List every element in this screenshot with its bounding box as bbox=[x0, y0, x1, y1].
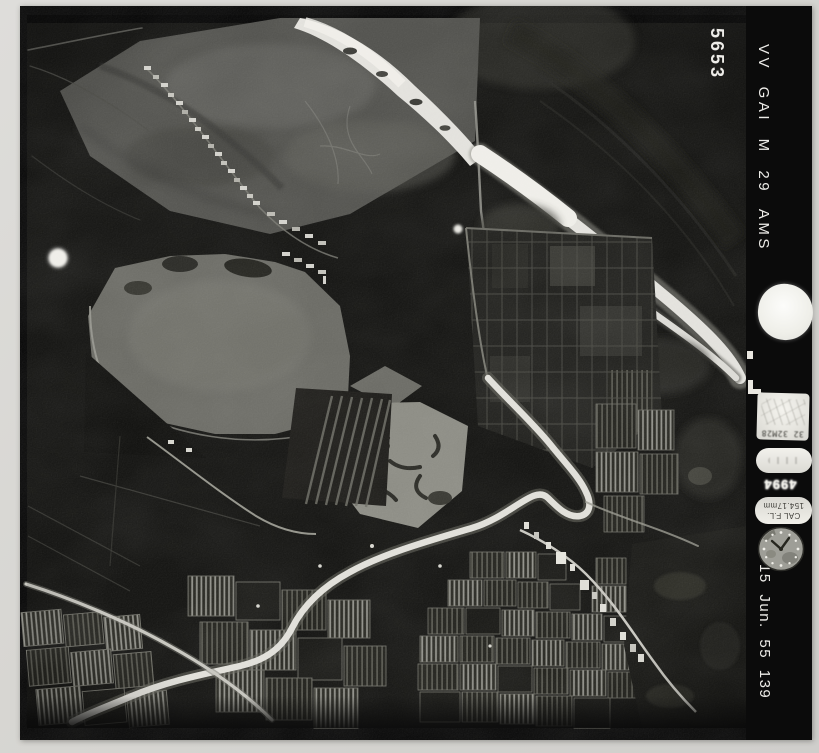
altimeter-reading: 32 32M28 bbox=[757, 428, 807, 438]
date-stamp: 15 Jun. 55 139 bbox=[756, 564, 773, 699]
photo-paper: 5653 VV GAI M 29 AMS 15 Jun. 55 139 32 3… bbox=[20, 6, 812, 740]
mission-code-stamp: VV GAI M 29 AMS bbox=[755, 44, 772, 252]
scan-background: 5653 VV GAI M 29 AMS 15 Jun. 55 139 32 3… bbox=[0, 0, 819, 753]
focal-plate-line2: 154.17mm bbox=[755, 501, 812, 511]
focal-length-plate: CAL F.L. 154.17mm bbox=[755, 497, 812, 524]
photo-frame-number: 5653 bbox=[706, 28, 727, 80]
focal-plate-line1: CAL F.L. bbox=[755, 511, 812, 521]
altimeter-window: 32 32M28 bbox=[756, 392, 809, 440]
photo-texture-overlay bbox=[27, 15, 746, 728]
level-bubble-window bbox=[756, 448, 812, 473]
aerial-photo-image bbox=[20, 6, 812, 740]
clock-dial-icon bbox=[757, 526, 805, 572]
edge-fiducial-mark bbox=[747, 351, 753, 359]
frame-counter: 4994 bbox=[758, 474, 802, 494]
